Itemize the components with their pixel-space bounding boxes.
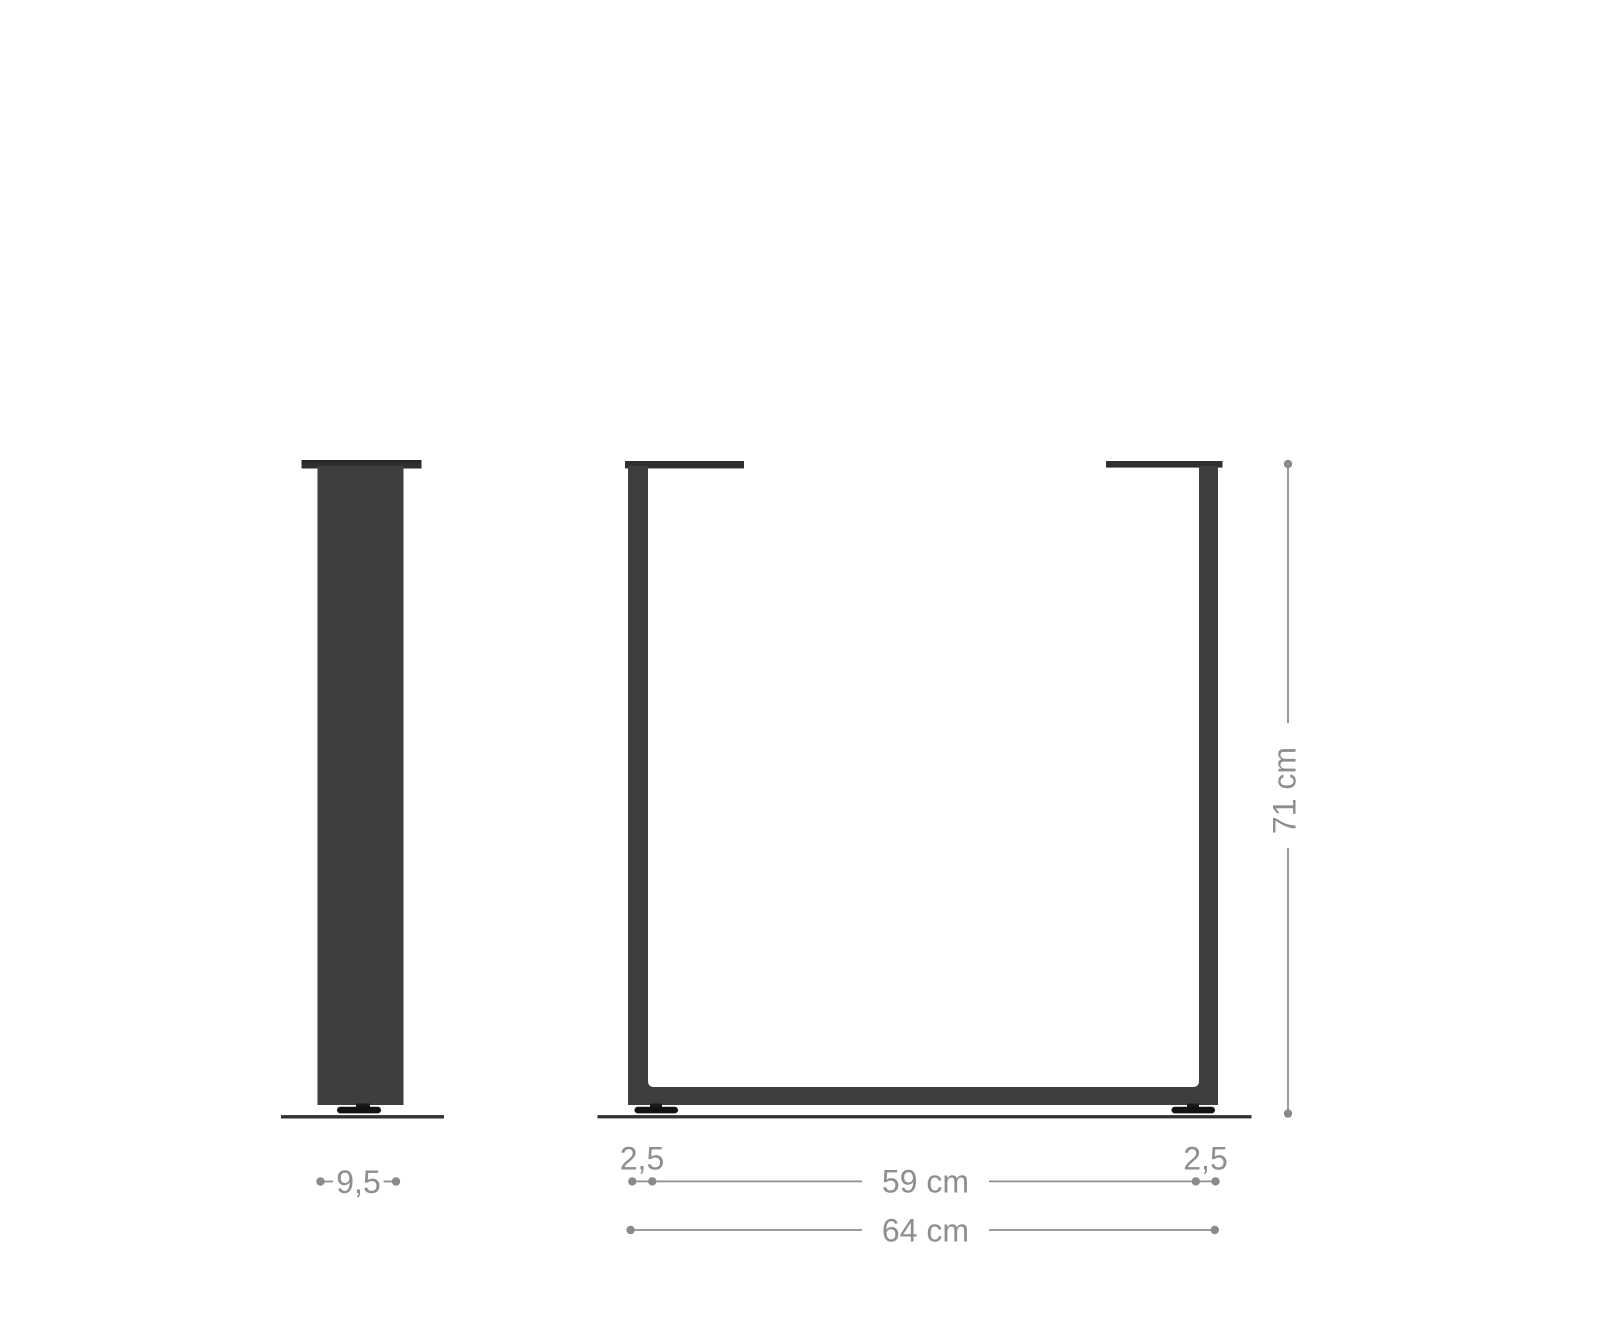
svg-text:9,5: 9,5	[336, 1164, 380, 1200]
svg-text:59 cm: 59 cm	[882, 1164, 969, 1200]
svg-text:2,5: 2,5	[620, 1141, 664, 1177]
svg-text:2,5: 2,5	[1183, 1141, 1227, 1177]
svg-text:64 cm: 64 cm	[882, 1212, 969, 1248]
svg-text:71 cm: 71 cm	[1267, 747, 1303, 834]
